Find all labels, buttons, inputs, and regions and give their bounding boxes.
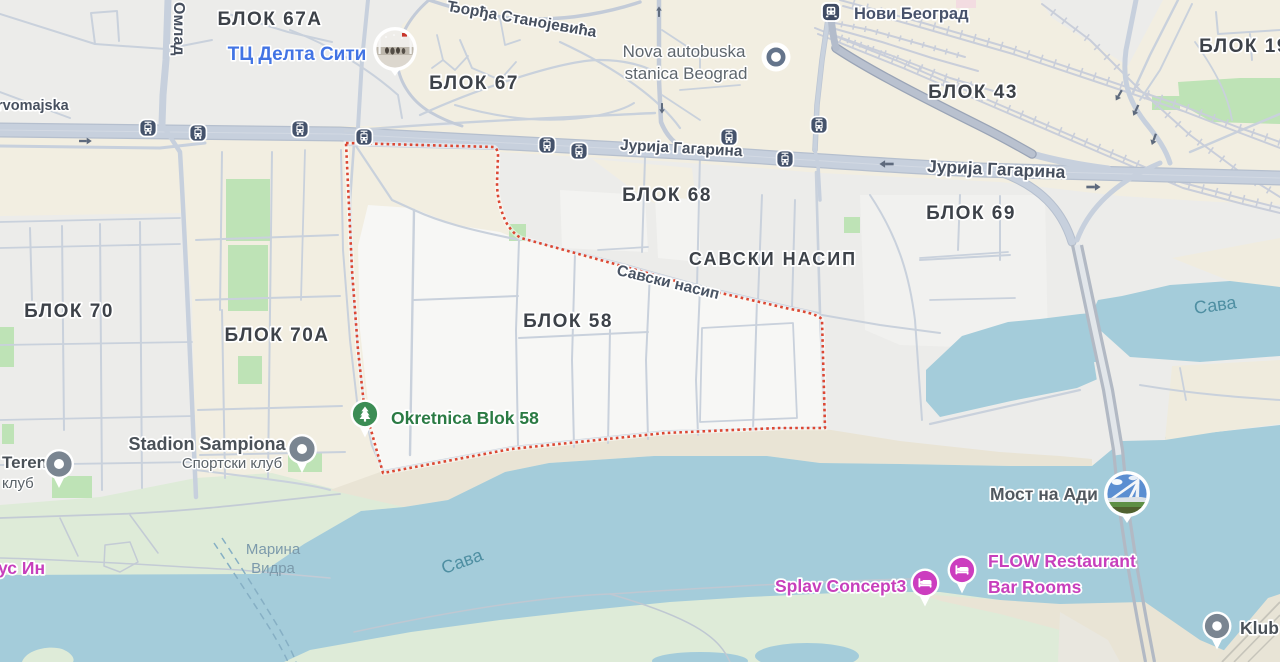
svg-text:ус Ин: ус Ин [0,558,45,578]
svg-text:ТЦ Делта Сити: ТЦ Делта Сити [228,44,367,65]
svg-text:САВСКИ НАСИП: САВСКИ НАСИП [689,249,857,269]
svg-text:БЛОК 19: БЛОК 19 [1199,36,1280,57]
svg-text:Klub: Klub [1240,618,1279,638]
svg-text:Видра: Видра [251,560,295,577]
svg-text:БЛОК 43: БЛОК 43 [928,82,1018,103]
svg-text:Спортски клуб: Спортски клуб [182,455,282,472]
svg-text:БЛОК 67А: БЛОК 67А [217,9,322,30]
svg-text:БЛОК 69: БЛОК 69 [926,203,1016,224]
svg-text:Омлад: Омлад [170,2,187,56]
svg-text:Мост на Ади: Мост на Ади [990,484,1098,504]
svg-text:Bar Rooms: Bar Rooms [988,577,1082,597]
svg-text:stanica Beograd: stanica Beograd [625,64,748,83]
svg-text:Teren: Teren [2,453,47,472]
svg-text:БЛОК 58: БЛОК 58 [523,311,613,332]
svg-text:БЛОК 67: БЛОК 67 [429,73,519,94]
svg-text:БЛОК 70: БЛОК 70 [24,301,114,322]
svg-text:Марина: Марина [246,541,301,558]
svg-text:FLOW Restaurant: FLOW Restaurant [988,551,1136,571]
svg-text:Нови Београд: Нови Београд [854,5,969,23]
svg-text:Okretnica Blok 58: Okretnica Blok 58 [391,408,539,428]
svg-text:БЛОК 70А: БЛОК 70А [224,325,329,346]
svg-text:Splav Concept3: Splav Concept3 [775,576,907,596]
svg-text:Nova autobuska: Nova autobuska [623,42,746,61]
svg-text:БЛОК 68: БЛОК 68 [622,185,712,206]
svg-text:клуб: клуб [2,475,34,492]
svg-text:Stadion Sampiona: Stadion Sampiona [128,434,286,454]
svg-text:rvomajska: rvomajska [0,98,70,114]
